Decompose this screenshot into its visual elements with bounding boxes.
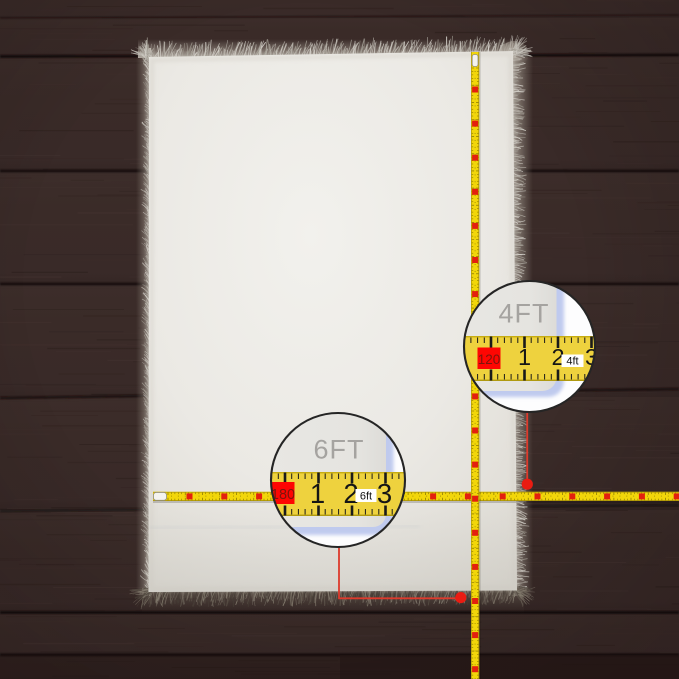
svg-text:3: 3 [377, 478, 392, 509]
svg-text:6ft: 6ft [360, 491, 372, 503]
svg-text:6FT: 6FT [313, 435, 364, 465]
svg-text:4ft: 4ft [566, 356, 578, 368]
svg-text:1: 1 [310, 478, 325, 509]
svg-text:1: 1 [518, 344, 531, 370]
svg-text:4FT: 4FT [498, 299, 549, 329]
svg-text:120: 120 [478, 352, 501, 367]
